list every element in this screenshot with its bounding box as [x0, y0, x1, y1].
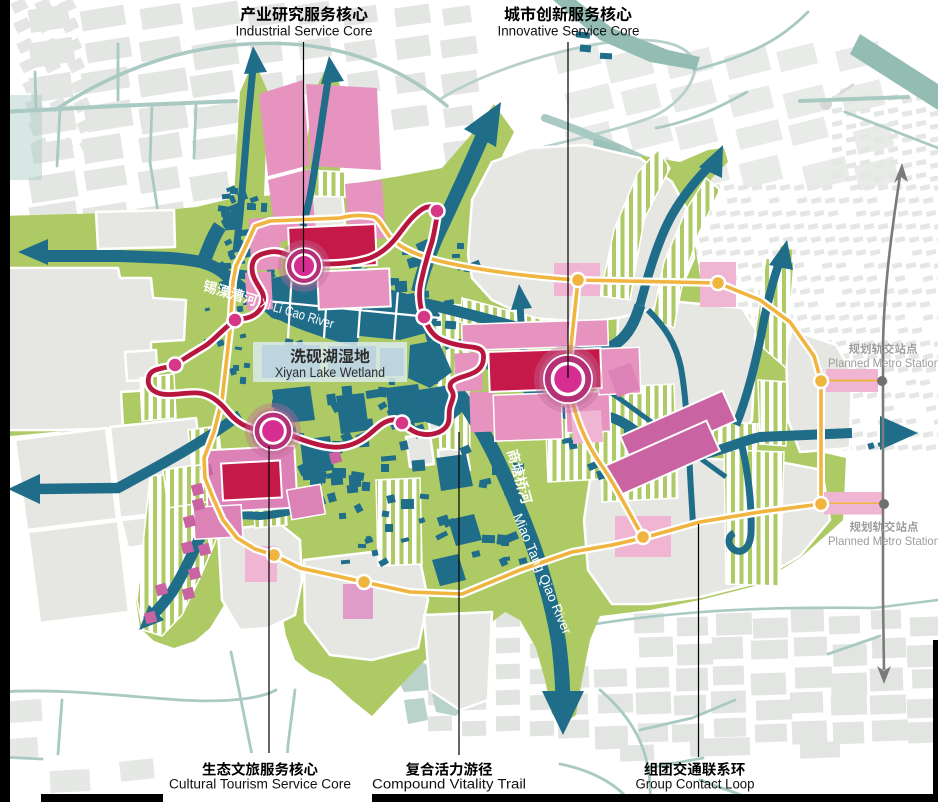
svg-text:Compound Vitality Trail: Compound Vitality Trail [372, 777, 526, 792]
svg-text:Innovative Service Core: Innovative Service Core [498, 24, 640, 40]
svg-text:Planned Metro Station: Planned Metro Station [828, 534, 938, 548]
svg-text:Xiyan Lake Wetland: Xiyan Lake Wetland [275, 364, 385, 380]
svg-text:Group Contact Loop: Group Contact Loop [636, 777, 755, 792]
svg-text:Industrial Service Core: Industrial Service Core [236, 24, 373, 40]
svg-text:Cultural Tourism Service Core: Cultural Tourism Service Core [169, 777, 351, 792]
svg-text:Planned Metro Station: Planned Metro Station [828, 356, 938, 370]
